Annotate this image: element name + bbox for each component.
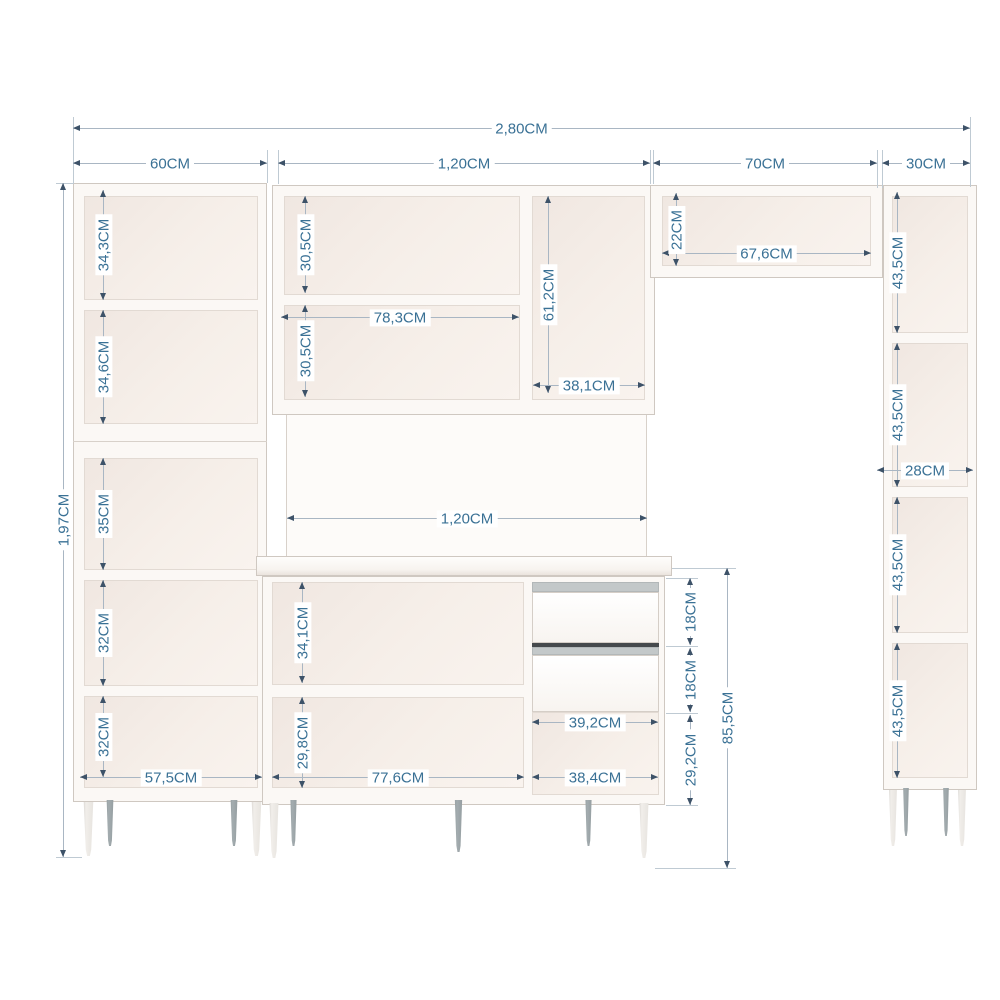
dim-upper-section-2: 30,5CM [305, 305, 306, 397]
dim-base-bottom-inner-width: 38,4CM [532, 777, 658, 778]
dim-label: 78,3CM [370, 309, 431, 326]
dim-label: 18CM [682, 656, 699, 704]
dim-label: 18CM [682, 587, 699, 635]
dim-left-section-5: 32CM [103, 696, 104, 777]
dim-label: 61,2CM [540, 264, 557, 325]
dim-label: 34,1CM [294, 602, 311, 663]
dim-right-section-2: 43,5CM [897, 343, 898, 487]
dim-right-section-3: 43,5CM [897, 497, 898, 633]
dim-overall-width: 2,80CM [73, 128, 970, 129]
dim-base-cabinet-width: 1,20CM [287, 518, 647, 519]
drawer-2-rail [532, 647, 659, 655]
extension-line [666, 805, 698, 806]
extension-line [653, 150, 654, 184]
dim-label: 30CM [902, 155, 950, 172]
dim-upper-right-height: 61,2CM [548, 196, 549, 393]
upper-cabinet-opening-top-left [284, 196, 520, 295]
dim-drawer-1-height: 18CM [690, 578, 691, 645]
extension-line [882, 150, 883, 188]
right-cabinet-back-leg-left [901, 788, 911, 836]
dim-label: 39,2CM [565, 714, 626, 731]
hutch-back-panel [286, 415, 647, 558]
dim-upper-left-inner-width: 78,3CM [281, 317, 519, 318]
dim-left-cabinet-inner-width: 57,5CM [80, 777, 262, 778]
dim-label: 77,6CM [368, 769, 429, 786]
extension-line [650, 150, 651, 184]
cabinet-dimension-diagram: 2,80CM 60CM 1,20CM 70CM 30CM 67,6CM 78,3… [0, 0, 1000, 1000]
extension-line [278, 150, 279, 184]
dim-upper-cabinet-width: 1,20CM [278, 163, 650, 164]
countertop [256, 556, 672, 576]
base-cabinet-middle-leg [452, 800, 465, 852]
right-cabinet-back-leg-right [941, 788, 951, 836]
dim-label: 43,5CM [889, 680, 906, 741]
extension-line [267, 150, 268, 183]
dim-label: 67,6CM [736, 245, 797, 262]
right-cabinet-front-leg-left [886, 790, 900, 846]
dim-niche-width: 39,2CM [532, 722, 658, 723]
dim-right-cabinet-inner-width: 28CM [877, 470, 973, 471]
dim-label: 1,20CM [434, 155, 495, 172]
dim-label: 70CM [741, 155, 789, 172]
dim-left-section-4: 32CM [103, 580, 104, 686]
dim-right-section-4: 43,5CM [897, 643, 898, 778]
dim-left-section-1: 34,3CM [103, 190, 104, 300]
left-cabinet-back-leg-right [228, 800, 240, 846]
left-cabinet-module-junction [73, 441, 267, 442]
dim-base-section-1: 34,1CM [302, 582, 303, 683]
dim-label: 32CM [95, 712, 112, 760]
dim-label: 38,1CM [559, 377, 620, 394]
base-cabinet-front-leg-right [636, 803, 652, 858]
dim-label: 38,4CM [565, 769, 626, 786]
base-cabinet-back-leg-right [583, 800, 594, 846]
dim-base-section-2: 29,8CM [302, 697, 303, 788]
dim-label: 22CM [668, 205, 685, 253]
dim-left-cabinet-width: 60CM [73, 163, 267, 164]
drawer-top-rail [532, 582, 659, 592]
dim-right-cabinet-width: 30CM [882, 163, 970, 164]
left-cabinet-front-leg-left [80, 802, 97, 856]
drawer-1 [532, 592, 659, 643]
dim-label: 43,5CM [889, 232, 906, 293]
dim-upper-section-1: 30,5CM [305, 196, 306, 293]
dim-label: 43,5CM [889, 535, 906, 596]
extension-line [666, 578, 698, 579]
dim-base-left-inner-width: 77,6CM [272, 777, 524, 778]
dim-label: 43,5CM [889, 385, 906, 446]
dim-label: 60CM [146, 155, 194, 172]
drawer-2 [532, 655, 659, 712]
dim-label: 28CM [901, 462, 949, 479]
dim-bridge-height: 22CM [676, 193, 677, 266]
dim-label: 32CM [95, 609, 112, 657]
dim-niche-height: 29,2CM [690, 715, 691, 805]
dim-label: 29,2CM [682, 730, 699, 791]
extension-line [970, 117, 971, 187]
extension-line [666, 713, 698, 714]
dim-left-section-3: 35CM [103, 458, 104, 570]
dim-label: 1,97CM [55, 490, 72, 551]
base-cabinet-back-leg-left [288, 800, 299, 846]
dim-label: 85,5CM [719, 688, 736, 749]
dim-label: 29,8CM [294, 712, 311, 773]
dim-overall-height: 1,97CM [63, 183, 64, 857]
extension-line [666, 646, 698, 647]
left-cabinet-back-leg-left [104, 800, 116, 846]
dim-label: 1,20CM [437, 510, 498, 527]
dim-right-section-1: 43,5CM [897, 192, 898, 333]
dim-drawer-2-height: 18CM [690, 648, 691, 712]
base-cabinet-front-leg-left [266, 803, 282, 858]
dim-bridge-width: 70CM [653, 163, 877, 164]
extension-line [877, 150, 878, 188]
dim-label: 30,5CM [297, 214, 314, 275]
left-cabinet-front-leg-right [248, 802, 265, 856]
dim-base-total-height: 85,5CM [727, 568, 728, 868]
dim-label: 34,6CM [95, 337, 112, 398]
dim-label: 30,5CM [297, 321, 314, 382]
dim-label: 35CM [95, 490, 112, 538]
dim-label: 2,80CM [491, 120, 552, 137]
extension-line [56, 857, 82, 858]
dim-label: 34,3CM [95, 215, 112, 276]
dim-label: 57,5CM [141, 769, 202, 786]
extension-line [655, 868, 736, 869]
right-cabinet-front-leg-right [955, 790, 969, 846]
dim-bridge-inner-width: 67,6CM [662, 253, 871, 254]
dim-left-section-2: 34,6CM [103, 310, 104, 424]
